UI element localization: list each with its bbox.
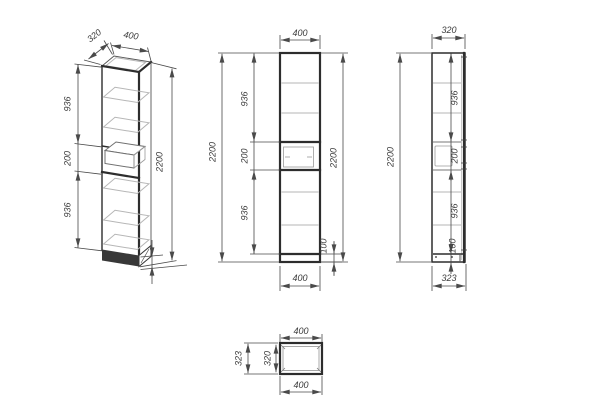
iso-depth-label: 320	[85, 27, 103, 44]
top-cabinet-outline	[280, 343, 322, 374]
side-cabinet-outline	[432, 53, 465, 262]
iso-shelf-3	[104, 178, 150, 193]
front-lower-section-label: 936	[240, 205, 250, 220]
iso-lower-section-label: 936	[63, 202, 73, 217]
side-dim-depth-top: 320	[432, 25, 465, 49]
iso-upper-section-label: 936	[63, 96, 73, 111]
top-depth-outer-label: 323	[234, 351, 244, 366]
iso-width-label: 400	[123, 29, 139, 41]
front-dim-width-bottom: 400	[280, 266, 320, 291]
iso-top-right-edge	[139, 62, 151, 72]
top-depth-inner-label: 320	[263, 351, 273, 366]
front-width-top-label: 400	[292, 28, 307, 38]
iso-shelf-1	[104, 87, 150, 102]
front-height-right-label: 2200	[329, 148, 339, 169]
iso-dim-chain-left: 936 200 936	[63, 64, 103, 251]
iso-height-label: 2200	[155, 152, 165, 173]
view-top: 400 320 323 400	[234, 326, 323, 395]
iso-dim-plinth	[141, 240, 188, 284]
view-side: 320 2200 936 200 936 100 323	[386, 25, 468, 291]
front-width-bottom-label: 400	[292, 273, 307, 283]
top-dim-width-top: 400	[280, 326, 322, 342]
side-dim-depth-bottom: 323	[432, 264, 466, 291]
cabinet-technical-drawing: 320 400 936 200 936	[0, 0, 600, 400]
front-dim-plinth: 100	[319, 238, 343, 276]
view-front: 400 2200 936 200 936 2200	[208, 28, 349, 291]
side-upper-section-label: 936	[450, 90, 460, 105]
side-dim-height: 2200	[386, 53, 432, 262]
top-cabinet-inner	[283, 347, 319, 371]
top-dim-width-bottom: 400	[280, 376, 322, 395]
front-plinth-label: 100	[319, 238, 329, 253]
top-dim-depth-inner: 320	[263, 345, 277, 372]
side-plinth-label: 100	[448, 238, 458, 253]
view-isometric: 320 400 936 200 936	[63, 27, 188, 284]
front-upper-section-label: 936	[240, 91, 250, 106]
front-cabinet-outline	[280, 53, 320, 262]
front-niche-label: 200	[240, 148, 250, 164]
front-height-left-label: 2200	[208, 142, 218, 163]
iso-niche-label: 200	[63, 151, 73, 167]
side-height-label: 2200	[386, 147, 396, 168]
iso-shelf-2	[104, 117, 150, 132]
iso-shelf-4	[104, 210, 150, 225]
iso-top-front-edge	[102, 66, 139, 72]
iso-dim-depth: 320	[84, 27, 113, 64]
side-depth-top-label: 320	[441, 25, 456, 35]
iso-niche-bottom-line	[102, 172, 139, 178]
iso-plinth-front	[102, 250, 139, 267]
top-width-bottom-label: 400	[293, 380, 308, 390]
side-depth-bottom-label: 323	[441, 273, 456, 283]
drawing-canvas: 320 400 936 200 936	[0, 0, 600, 400]
side-niche-label: 200	[450, 148, 460, 164]
front-dim-width-top: 400	[280, 28, 320, 49]
iso-dim-height: 2200	[140, 63, 177, 267]
top-width-top-label: 400	[293, 326, 308, 336]
front-dim-height-right: 2200	[321, 53, 348, 262]
iso-bottom-shelf	[104, 234, 150, 249]
side-lower-section-label: 936	[450, 203, 460, 218]
front-dim-chain: 936 200 936	[240, 54, 281, 255]
top-corner-hatch	[281, 345, 321, 372]
